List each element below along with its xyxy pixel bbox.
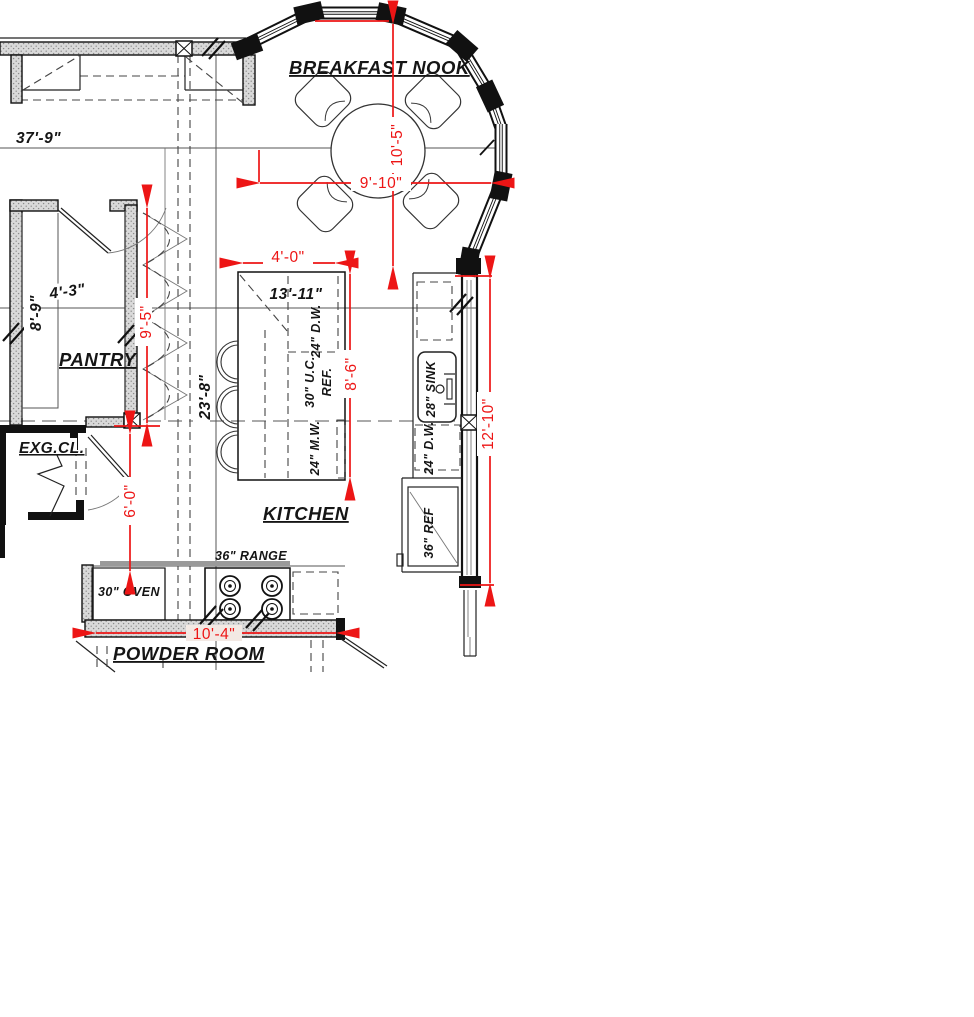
island-stools [217, 341, 238, 473]
appliance-labels: 24" D.W. 30" U.C. REF. 24" M.W. 28" SINK… [98, 304, 438, 599]
floor-plan-canvas: 37'-9" 4'-3" 8'-9" 23'-8" 13'-11" 24" D.… [0, 0, 974, 1017]
label-oven: 30" OVEN [98, 585, 161, 599]
dim-sink-wall: 12'-10" [480, 398, 497, 450]
faucet-icon [447, 379, 452, 399]
dim-island-length: 8'-6" [343, 357, 360, 390]
room-exg-closet: EXG.CL. [19, 440, 85, 457]
label-island-ucref-1: 30" U.C. [303, 356, 317, 408]
stool [217, 341, 238, 383]
dim-pantry-width: 4'-3" [47, 281, 86, 303]
stool [217, 431, 238, 473]
label-sink: 28" SINK [424, 360, 438, 418]
dim-range-wall: 10'-4" [193, 626, 235, 643]
stool [217, 386, 238, 428]
column-marker-top [176, 41, 192, 56]
black-dimensions: 37'-9" 4'-3" 8'-9" 23'-8" 13'-11" [16, 130, 323, 427]
room-breakfast-nook: BREAKFAST NOOK [289, 57, 471, 78]
dim-pantry-run: 9'-5" [138, 305, 155, 338]
label-range: 36" RANGE [215, 549, 287, 563]
dim-island-clearance: 4'-0" [271, 249, 304, 266]
dim-island: 13'-11" [269, 286, 322, 303]
breakfast-table-set [291, 67, 465, 236]
label-island-dw: 24" D.W. [309, 304, 323, 358]
dim-aisle: 6'-0" [122, 484, 139, 517]
right-window-wall [450, 258, 481, 656]
label-wall-dw: 24" D.W. [422, 421, 436, 475]
label-island-mw: 24" M.W. [308, 421, 322, 477]
dim-kitchen-run: 23'-8" [197, 374, 214, 420]
dim-overall: 37'-9" [16, 130, 61, 147]
column-marker-wall [461, 415, 477, 430]
label-ref: 36" REF [422, 507, 436, 558]
bay-corner-post [489, 171, 512, 202]
dim-pantry-depth: 8'-9" [28, 295, 45, 331]
room-powder-room: POWDER ROOM [113, 643, 265, 664]
room-pantry: PANTRY [59, 349, 138, 370]
top-wall-cabinets [0, 38, 255, 105]
dim-nook-width: 9'-10" [360, 175, 402, 192]
room-kitchen: KITCHEN [263, 503, 349, 524]
range-burners [220, 576, 282, 619]
bay-corner-post [375, 2, 406, 25]
label-island-ucref-2: REF. [320, 368, 334, 397]
counter-nosing [100, 561, 222, 566]
dim-nook-depth: 10'-5" [389, 124, 406, 166]
floor-plan-page: 37'-9" 4'-3" 8'-9" 23'-8" 13'-11" 24" D.… [0, 0, 974, 1017]
